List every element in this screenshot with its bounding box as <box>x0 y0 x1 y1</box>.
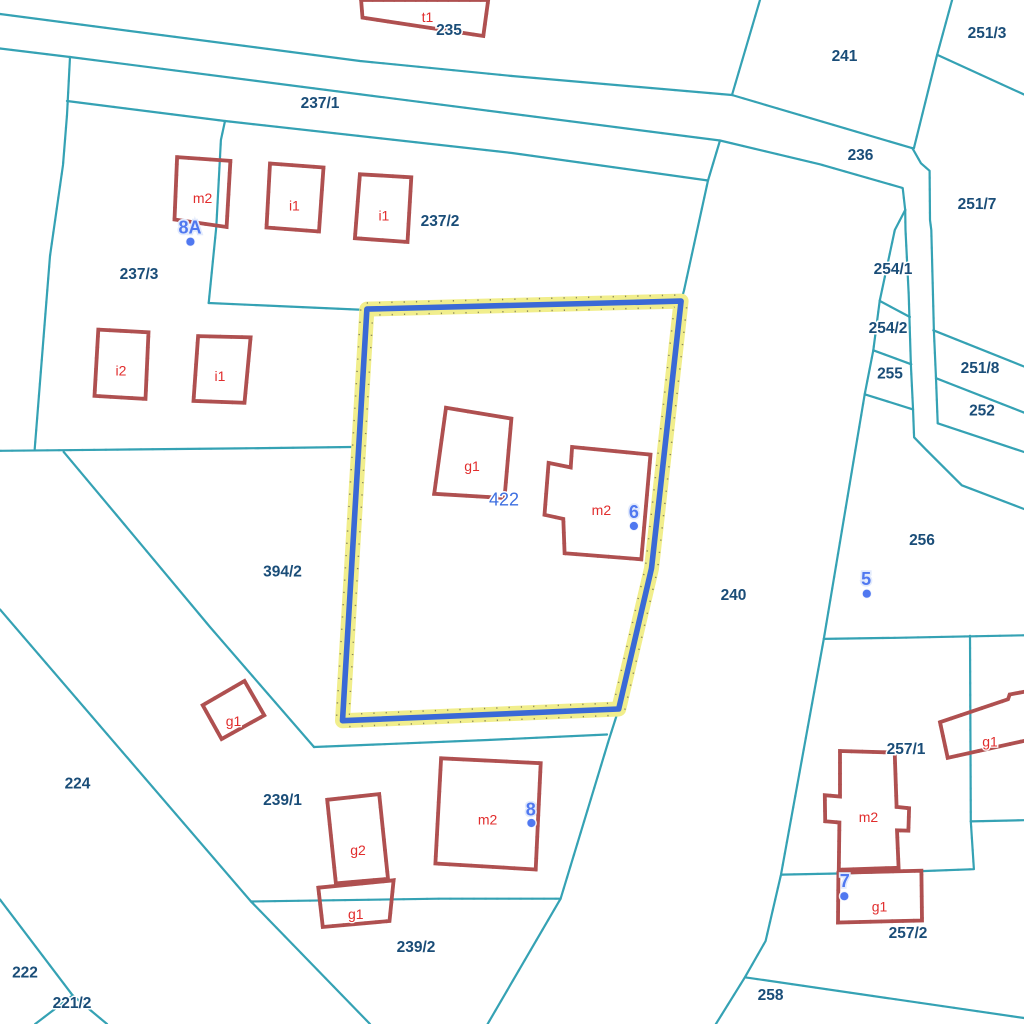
svg-text:239/1: 239/1 <box>263 792 302 809</box>
svg-text:241: 241 <box>832 48 858 65</box>
svg-text:g1: g1 <box>348 906 364 922</box>
svg-text:257/1: 257/1 <box>887 741 926 758</box>
svg-text:252: 252 <box>969 403 995 420</box>
svg-text:239/2: 239/2 <box>397 939 436 956</box>
svg-text:222: 222 <box>12 965 38 982</box>
svg-text:m2: m2 <box>859 809 879 825</box>
svg-text:251/3: 251/3 <box>968 25 1007 42</box>
svg-text:t1: t1 <box>422 9 434 25</box>
svg-text:235: 235 <box>436 22 462 39</box>
svg-text:251/8: 251/8 <box>961 360 1000 377</box>
svg-text:8: 8 <box>526 800 536 820</box>
svg-text:236: 236 <box>848 147 874 164</box>
svg-text:7: 7 <box>840 871 850 891</box>
svg-text:255: 255 <box>877 366 903 383</box>
svg-text:237/1: 237/1 <box>301 95 340 112</box>
svg-text:254/1: 254/1 <box>874 261 913 278</box>
svg-text:394/2: 394/2 <box>263 564 302 581</box>
svg-text:8A: 8A <box>178 218 201 238</box>
svg-text:254/2: 254/2 <box>869 320 908 337</box>
svg-text:g2: g2 <box>350 842 366 858</box>
svg-text:237/2: 237/2 <box>421 213 460 230</box>
svg-text:i1: i1 <box>378 208 389 224</box>
svg-text:257/2: 257/2 <box>889 925 928 942</box>
svg-text:6: 6 <box>629 502 639 522</box>
svg-text:i1: i1 <box>289 198 300 214</box>
svg-text:422: 422 <box>489 490 519 510</box>
svg-text:221/2: 221/2 <box>53 995 92 1012</box>
svg-text:224: 224 <box>65 776 91 793</box>
svg-text:240: 240 <box>721 587 747 604</box>
svg-text:g1: g1 <box>872 899 888 915</box>
svg-text:g1: g1 <box>464 458 480 474</box>
svg-text:237/3: 237/3 <box>120 266 159 283</box>
svg-text:5: 5 <box>861 569 871 589</box>
svg-text:m2: m2 <box>592 502 612 518</box>
svg-text:i1: i1 <box>215 368 226 384</box>
svg-text:m2: m2 <box>193 190 213 206</box>
svg-text:g1: g1 <box>982 734 998 750</box>
svg-text:256: 256 <box>909 532 935 549</box>
svg-text:258: 258 <box>758 987 784 1004</box>
svg-text:g1: g1 <box>226 713 242 729</box>
svg-text:m2: m2 <box>478 812 498 828</box>
svg-text:251/7: 251/7 <box>958 196 997 213</box>
svg-text:i2: i2 <box>116 363 127 379</box>
